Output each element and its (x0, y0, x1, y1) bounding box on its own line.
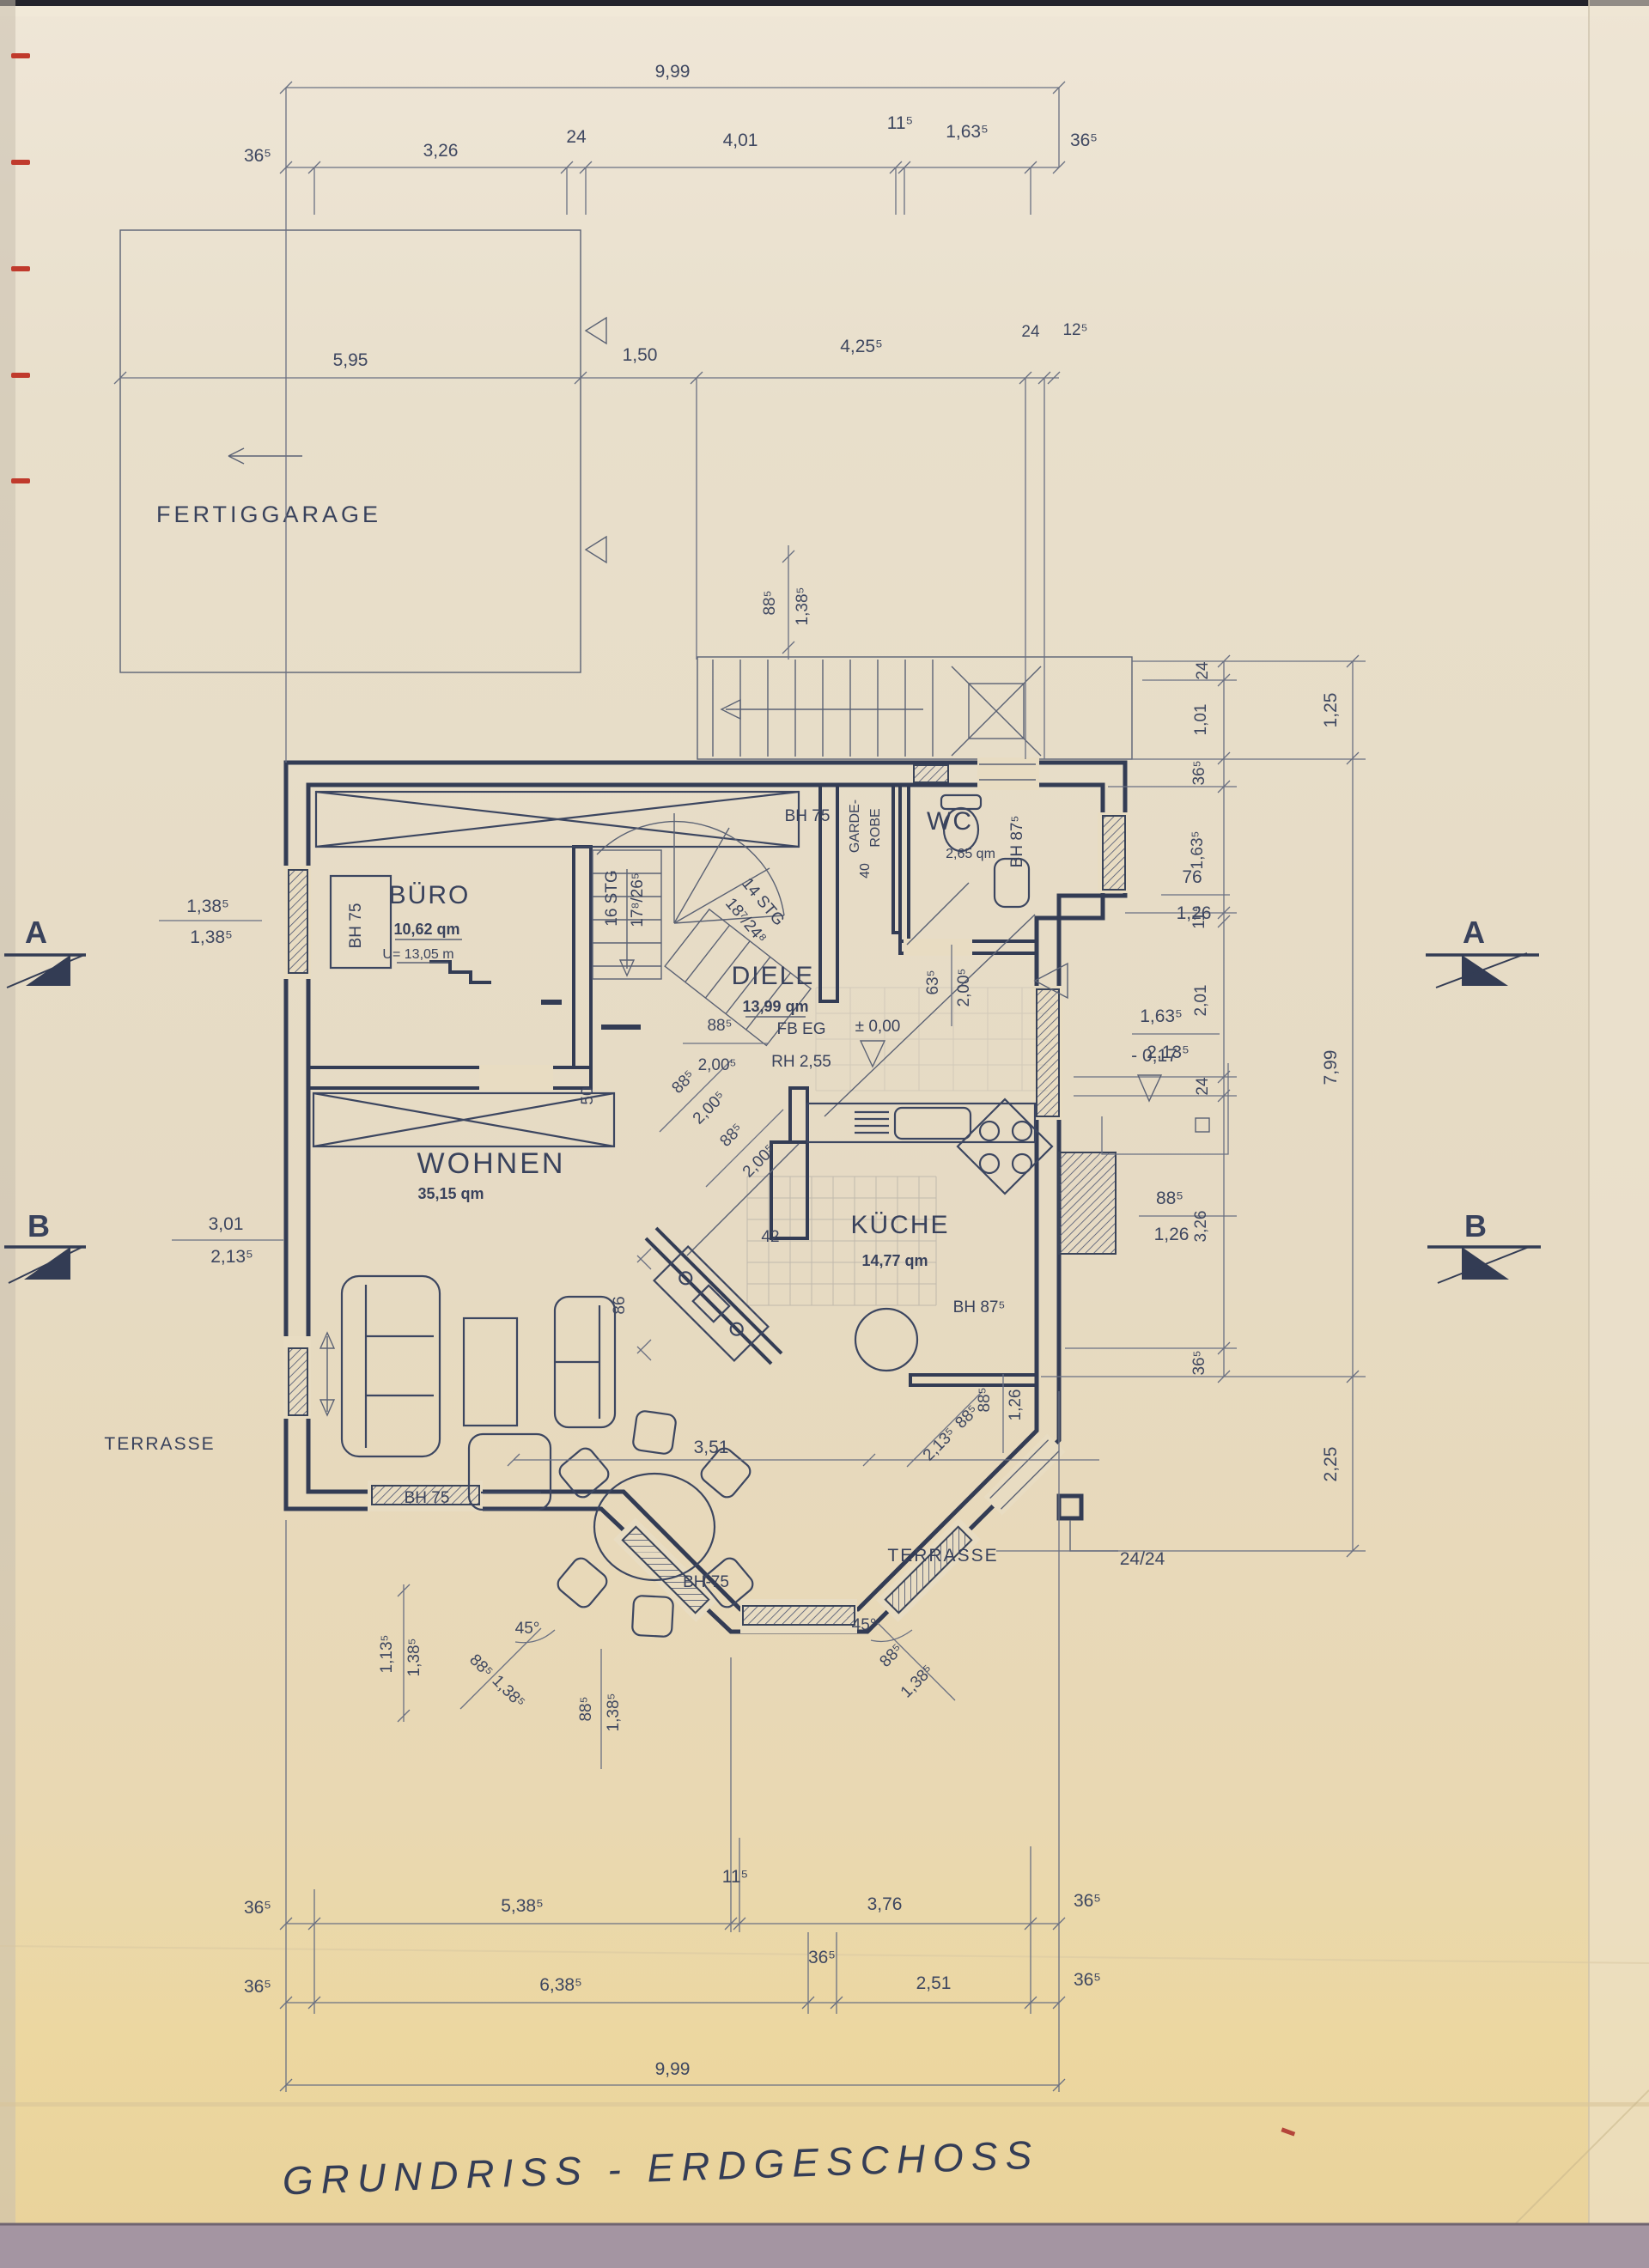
svg-text:1,63⁵: 1,63⁵ (1189, 831, 1207, 870)
svg-text:45°: 45° (852, 1616, 877, 1634)
svg-text:11⁵: 11⁵ (887, 113, 914, 133)
svg-text:88⁵: 88⁵ (577, 1696, 595, 1721)
post-size-label: 24/24 (1120, 1549, 1165, 1569)
svg-text:24: 24 (1021, 323, 1040, 341)
buero-bh-label: BH 75 (347, 903, 365, 949)
terrasse-west-label: TERRASSE (104, 1434, 215, 1454)
svg-text:12⁵: 12⁵ (1062, 321, 1087, 339)
wohnen-terrace-door (289, 1348, 307, 1415)
svg-text:1,38⁵: 1,38⁵ (405, 1639, 423, 1677)
svg-text:B: B (1464, 1208, 1487, 1243)
east-window (1037, 989, 1059, 1116)
kueche-bh-label: BH 87⁵ (953, 1298, 1006, 1316)
svg-text:5,38⁵: 5,38⁵ (501, 1896, 544, 1916)
entry-east-window (1103, 816, 1125, 890)
room-label-wc: WC (927, 807, 973, 836)
svg-text:2,25: 2,25 (1321, 1447, 1341, 1482)
svg-text:2,51: 2,51 (916, 1973, 952, 1993)
svg-text:1,63⁵: 1,63⁵ (946, 122, 989, 142)
room-label-kueche: KÜCHE (850, 1211, 949, 1239)
garage-label: FERTIGGARAGE (156, 502, 381, 527)
svg-text:88⁵: 88⁵ (976, 1387, 994, 1412)
svg-text:1,25: 1,25 (1321, 693, 1341, 728)
svg-text:7,99: 7,99 (1321, 1050, 1341, 1085)
svg-text:36⁵: 36⁵ (1074, 1891, 1101, 1911)
svg-text:36⁵: 36⁵ (1070, 131, 1098, 150)
svg-text:14,77 qm: 14,77 qm (861, 1252, 928, 1269)
dim-top-total: 9,99 (655, 62, 691, 82)
paper-background (0, 0, 1649, 2268)
svg-text:36⁵: 36⁵ (244, 1977, 271, 1997)
room-label-wohnen: WOHNEN (417, 1147, 566, 1180)
wc-window (914, 765, 948, 782)
svg-text:6,38⁵: 6,38⁵ (539, 1975, 582, 1995)
svg-text:88⁵: 88⁵ (761, 590, 779, 615)
svg-text:11⁵: 11⁵ (722, 1867, 749, 1887)
svg-text:76: 76 (1182, 867, 1202, 887)
svg-text:GARDE-: GARDE- (848, 800, 862, 853)
svg-text:36⁵: 36⁵ (1190, 760, 1208, 785)
south-bh-label: BH 75 (405, 1489, 450, 1507)
room-label-buero: BÜRO (389, 881, 471, 909)
svg-text:35,15 qm: 35,15 qm (417, 1185, 484, 1202)
dim-bottom-total: 9,99 (655, 2059, 691, 2079)
scanned-floorplan-page: FERTIGGARAGE (0, 0, 1649, 2268)
svg-text:1,13⁵: 1,13⁵ (378, 1635, 396, 1674)
wc-bh-label: BH 87⁵ (1008, 816, 1026, 868)
svg-text:1,50: 1,50 (623, 345, 658, 365)
svg-text:1,38⁵: 1,38⁵ (605, 1693, 623, 1732)
svg-text:RH 2,55: RH 2,55 (771, 1053, 831, 1071)
svg-text:24: 24 (566, 127, 587, 147)
svg-text:4,25⁵: 4,25⁵ (840, 337, 883, 356)
svg-text:3,26: 3,26 (423, 141, 459, 161)
svg-text:1,38⁵: 1,38⁵ (186, 897, 229, 916)
svg-text:13,99 qm: 13,99 qm (742, 998, 808, 1015)
svg-text:3,01: 3,01 (209, 1214, 244, 1234)
floorplan-drawing: FERTIGGARAGE (0, 0, 1649, 2268)
svg-text:1,26: 1,26 (1007, 1389, 1025, 1421)
svg-text:10,62 qm: 10,62 qm (393, 921, 459, 938)
stair-steps-label: 16 STG (603, 870, 621, 926)
svg-text:A: A (25, 915, 47, 950)
stair-bh-label: BH 75 (785, 807, 831, 825)
svg-text:2,13⁵: 2,13⁵ (210, 1247, 253, 1267)
svg-text:4,01: 4,01 (723, 131, 758, 150)
svg-text:1,01: 1,01 (1192, 704, 1210, 736)
svg-text:36⁵: 36⁵ (1190, 1350, 1208, 1375)
svg-text:1,38⁵: 1,38⁵ (794, 587, 812, 626)
svg-text:2,00⁵: 2,00⁵ (955, 969, 973, 1007)
svg-text:B: B (27, 1208, 50, 1243)
svg-text:17⁸/26⁵: 17⁸/26⁵ (629, 873, 647, 927)
entry-level-value: - 0,17 (1131, 1046, 1177, 1066)
bay-south-window (743, 1606, 855, 1625)
svg-text:24: 24 (1194, 661, 1212, 680)
svg-text:3,51: 3,51 (694, 1438, 729, 1457)
svg-text:3,76: 3,76 (867, 1894, 903, 1914)
svg-text:36⁵: 36⁵ (1074, 1970, 1101, 1990)
svg-text:2,01: 2,01 (1192, 985, 1210, 1017)
svg-text:36⁵: 36⁵ (808, 1948, 836, 1967)
bay-bh-label: BH-75 (683, 1573, 729, 1591)
svg-text:63⁵: 63⁵ (924, 970, 942, 994)
svg-text:1,26: 1,26 (1177, 903, 1212, 923)
svg-text:86: 86 (611, 1296, 629, 1314)
svg-text:3,26: 3,26 (1192, 1211, 1210, 1243)
svg-text:50: 50 (579, 1086, 597, 1104)
svg-text:5,95: 5,95 (333, 350, 368, 370)
svg-text:36⁵: 36⁵ (244, 146, 271, 166)
svg-text:40: 40 (858, 863, 873, 879)
svg-text:1,63⁵: 1,63⁵ (1140, 1006, 1183, 1026)
svg-text:U= 13,05 m: U= 13,05 m (382, 947, 453, 962)
svg-text:1,38⁵: 1,38⁵ (190, 927, 233, 947)
svg-text:88⁵: 88⁵ (1156, 1189, 1184, 1208)
svg-text:2,00⁵: 2,00⁵ (698, 1056, 737, 1074)
svg-text:45°: 45° (515, 1620, 540, 1638)
svg-text:FB EG: FB EG (776, 1020, 825, 1038)
svg-text:42: 42 (761, 1228, 779, 1246)
room-label-diele: DIELE (732, 962, 815, 990)
svg-text:2,65 qm: 2,65 qm (946, 847, 995, 861)
svg-text:24: 24 (1194, 1077, 1212, 1096)
buero-west-window (289, 870, 307, 973)
svg-text:36⁵: 36⁵ (244, 1898, 271, 1918)
svg-text:1,26: 1,26 (1154, 1225, 1190, 1244)
svg-text:ROBE: ROBE (868, 808, 883, 847)
svg-text:± 0,00: ± 0,00 (855, 1018, 901, 1036)
kitchen-east-window (1059, 1152, 1116, 1254)
terrasse-south-label: TERRASSE (887, 1546, 998, 1566)
svg-text:88⁵: 88⁵ (707, 1017, 732, 1035)
svg-text:A: A (1463, 915, 1485, 950)
